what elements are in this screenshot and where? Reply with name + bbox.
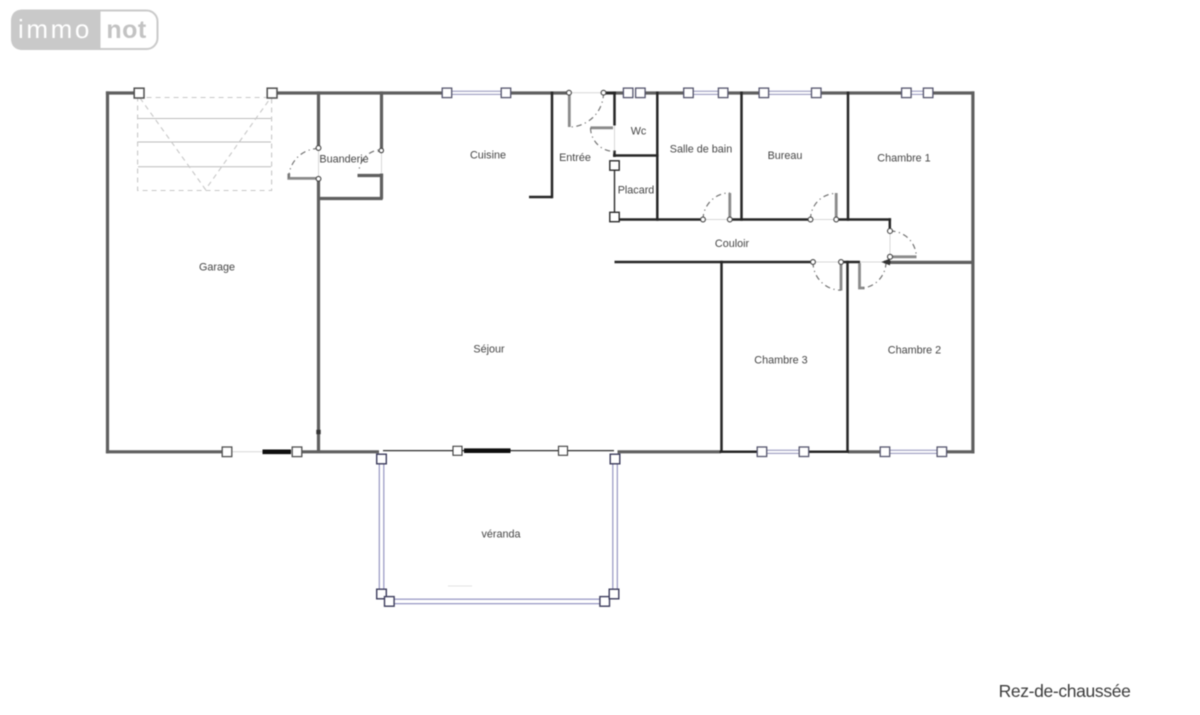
svg-text:Entrée: Entrée — [559, 152, 591, 164]
svg-text:Bureau: Bureau — [768, 150, 803, 162]
svg-text:Couloir: Couloir — [715, 238, 750, 250]
svg-text:Chambre 2: Chambre 2 — [888, 345, 941, 357]
svg-text:Chambre 3: Chambre 3 — [754, 355, 807, 367]
svg-text:not: not — [106, 16, 147, 44]
svg-text:Séjour: Séjour — [473, 344, 505, 356]
svg-text:immo: immo — [18, 14, 92, 44]
svg-text:Salle de bain: Salle de bain — [670, 144, 732, 156]
svg-text:véranda: véranda — [481, 529, 520, 541]
svg-text:Rez-de-chaussée: Rez-de-chaussée — [999, 681, 1131, 701]
svg-text:Placard: Placard — [618, 185, 655, 197]
svg-text:Wc: Wc — [631, 126, 647, 138]
svg-text:Buanderie: Buanderie — [319, 154, 368, 166]
svg-text:Chambre 1: Chambre 1 — [877, 153, 930, 165]
svg-text:Cuisine: Cuisine — [470, 150, 506, 162]
svg-text:Garage: Garage — [199, 262, 235, 274]
